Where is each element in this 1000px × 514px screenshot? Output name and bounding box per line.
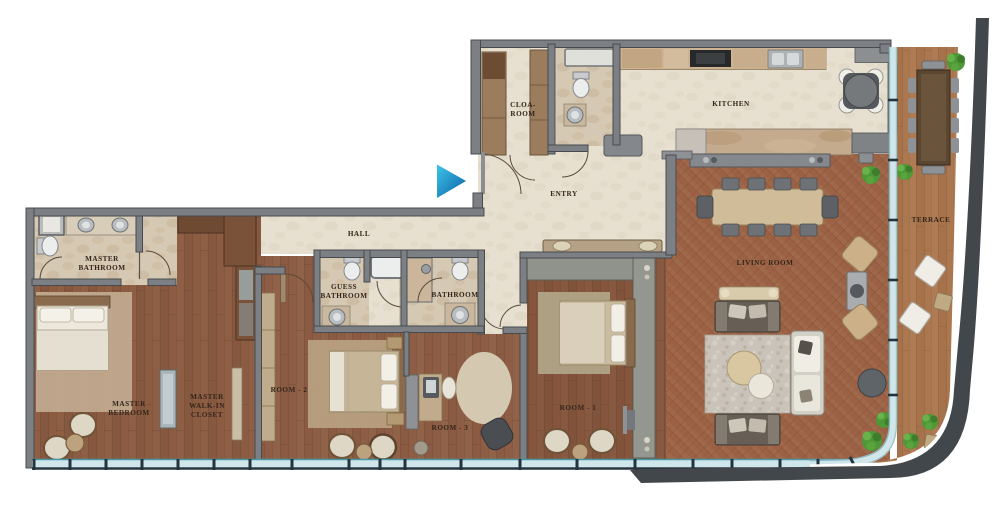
svg-text:KITCHEN: KITCHEN (712, 100, 750, 108)
svg-text:MASTER: MASTER (85, 255, 119, 263)
svg-text:TERRACE: TERRACE (912, 216, 951, 224)
svg-text:CLOA-: CLOA- (510, 101, 536, 109)
svg-text:BATHROOM: BATHROOM (432, 291, 479, 299)
svg-text:BATHROOM: BATHROOM (79, 264, 126, 272)
svg-text:ROOM - 3: ROOM - 3 (432, 424, 469, 432)
svg-text:LIVING ROOM: LIVING ROOM (737, 259, 794, 267)
svg-text:BATHROOM: BATHROOM (321, 292, 368, 300)
svg-text:ROOM - 1: ROOM - 1 (560, 404, 597, 412)
svg-text:GUESS: GUESS (331, 283, 357, 291)
svg-text:CLOSET: CLOSET (191, 411, 223, 419)
svg-text:WALK-IN: WALK-IN (189, 402, 225, 410)
svg-text:ENTRY: ENTRY (550, 190, 578, 198)
svg-text:HALL: HALL (348, 230, 370, 238)
svg-text:ROOM - 2: ROOM - 2 (271, 386, 308, 394)
svg-text:BEDROOM: BEDROOM (108, 409, 149, 417)
svg-text:MASTER: MASTER (190, 393, 224, 401)
svg-text:ROOM: ROOM (510, 110, 535, 118)
svg-text:MASTER: MASTER (112, 400, 146, 408)
